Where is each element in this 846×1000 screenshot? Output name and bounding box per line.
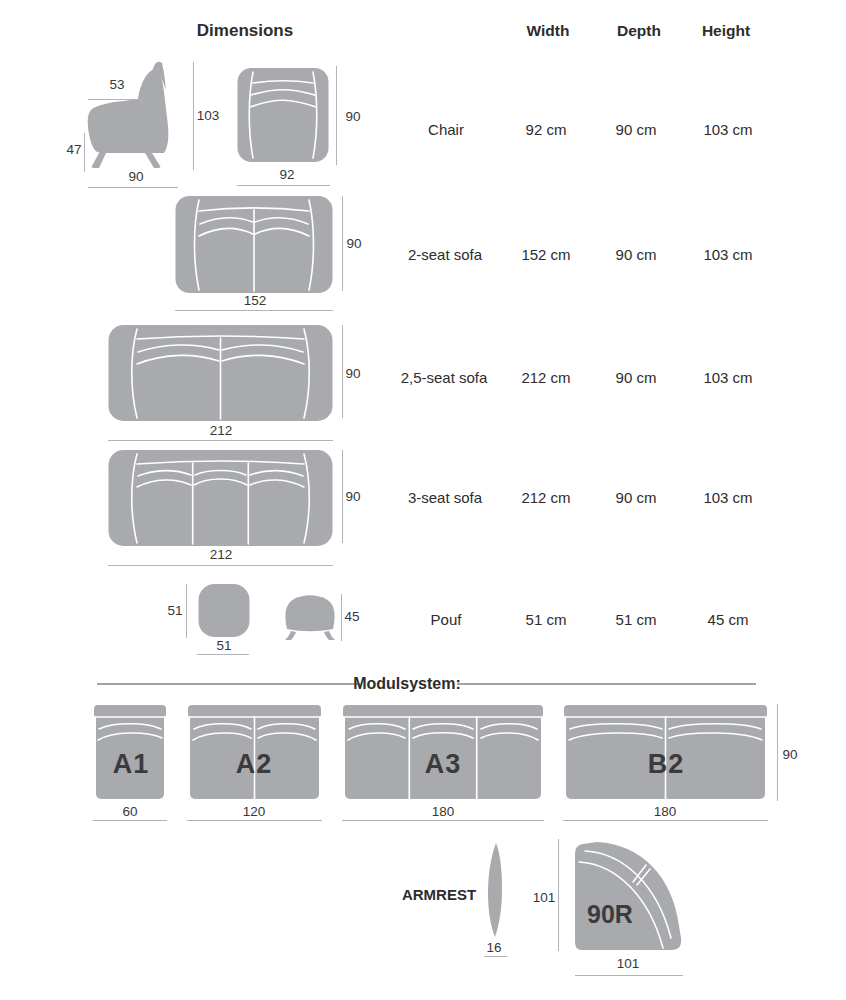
row-name-3seat: 3-seat sofa bbox=[408, 489, 482, 506]
column-header-width: Width bbox=[527, 22, 570, 40]
module-a2-dimline bbox=[187, 820, 322, 821]
chair-side-height-dim: 103 bbox=[197, 108, 220, 123]
pouf-top-view bbox=[197, 582, 251, 639]
module-b2-label: B2 bbox=[648, 749, 685, 780]
chair-side-depth-dimline bbox=[88, 187, 178, 188]
chair-side-top-dim: 53 bbox=[109, 77, 124, 92]
sofa3-depth-dim: 90 bbox=[345, 489, 360, 504]
chair-top-depth-dimline bbox=[336, 66, 337, 165]
chair-side-seatheight-dim: 47 bbox=[66, 142, 81, 157]
corner-depth-dimline bbox=[558, 839, 559, 951]
dimensions-sheet: Dimensions Width Depth Height 53 103 47 … bbox=[0, 0, 846, 1000]
row-height-3seat: 103 cm bbox=[703, 489, 752, 506]
armrest-width-dim: 16 bbox=[486, 940, 501, 955]
sofa2-depth-dim: 90 bbox=[346, 236, 361, 251]
row-depth-chair: 90 cm bbox=[616, 121, 657, 138]
corner-90r-shape bbox=[571, 838, 684, 954]
row-height-pouf: 45 cm bbox=[708, 611, 749, 628]
row-name-25seat: 2,5-seat sofa bbox=[401, 369, 488, 386]
row-depth-25seat: 90 cm bbox=[616, 369, 657, 386]
sofa3-width-dim: 212 bbox=[210, 547, 233, 562]
page-title: Dimensions bbox=[197, 21, 293, 41]
armrest-label: ARMREST bbox=[402, 886, 476, 903]
module-depth-dim: 90 bbox=[782, 747, 797, 762]
armrest-dimline bbox=[484, 956, 507, 957]
chair-top-depth-dim: 90 bbox=[345, 109, 360, 124]
row-height-25seat: 103 cm bbox=[703, 369, 752, 386]
sofa3-width-dimline bbox=[108, 565, 333, 566]
row-width-25seat: 212 cm bbox=[521, 369, 570, 386]
module-a1-width-dim: 60 bbox=[122, 804, 137, 819]
sofa25-depth-dim: 90 bbox=[345, 366, 360, 381]
pouf-height-dimline bbox=[341, 594, 342, 641]
chair-side-depth-dim: 90 bbox=[128, 169, 143, 184]
row-depth-pouf: 51 cm bbox=[616, 611, 657, 628]
pouf-width-dim: 51 bbox=[216, 638, 231, 653]
sofa2-width-dim: 152 bbox=[244, 293, 267, 308]
corner-90r-label: 90R bbox=[587, 900, 633, 929]
row-width-pouf: 51 cm bbox=[526, 611, 567, 628]
modulsystem-heading: Modulsystem: bbox=[353, 675, 461, 693]
module-a3-dimline bbox=[342, 820, 544, 821]
chair-top-width-dimline bbox=[237, 185, 330, 186]
sofa2-depth-dimline bbox=[342, 196, 343, 291]
sofa-3seat-top-view bbox=[107, 448, 334, 548]
sofa25-depth-dimline bbox=[342, 325, 343, 418]
sofa25-width-dimline bbox=[108, 440, 333, 441]
corner-width-dimline bbox=[575, 975, 683, 976]
row-width-2seat: 152 cm bbox=[521, 246, 570, 263]
chair-side-height-dimline bbox=[193, 62, 194, 170]
row-height-2seat: 103 cm bbox=[703, 246, 752, 263]
module-depth-dimline bbox=[777, 704, 778, 801]
pouf-width-dimline bbox=[197, 654, 249, 655]
sofa-2seat-top-view bbox=[174, 194, 334, 295]
module-a1-label: A1 bbox=[113, 749, 150, 780]
row-name-2seat: 2-seat sofa bbox=[408, 246, 482, 263]
corner-width-dim: 101 bbox=[617, 956, 640, 971]
sofa3-depth-dimline bbox=[342, 450, 343, 543]
sofa-25seat-top-view bbox=[107, 323, 334, 423]
module-a2-label: A2 bbox=[236, 749, 273, 780]
chair-top-width-dim: 92 bbox=[279, 167, 294, 182]
pouf-depth-dimline bbox=[186, 584, 187, 638]
module-a2-width-dim: 120 bbox=[243, 804, 266, 819]
chair-side-seatheight-dimline bbox=[84, 133, 85, 172]
row-name-pouf: Pouf bbox=[431, 611, 462, 628]
modulsystem-separator-left bbox=[97, 683, 360, 685]
chair-side-top-dimline bbox=[88, 99, 147, 100]
module-a1-dimline bbox=[93, 820, 167, 821]
row-depth-3seat: 90 cm bbox=[616, 489, 657, 506]
row-width-3seat: 212 cm bbox=[521, 489, 570, 506]
column-header-height: Height bbox=[702, 22, 750, 40]
chair-side-view bbox=[84, 60, 184, 172]
row-height-chair: 103 cm bbox=[703, 121, 752, 138]
pouf-side-view bbox=[282, 591, 338, 641]
row-depth-2seat: 90 cm bbox=[616, 246, 657, 263]
row-width-chair: 92 cm bbox=[526, 121, 567, 138]
corner-depth-dim: 101 bbox=[533, 890, 556, 905]
column-header-depth: Depth bbox=[617, 22, 661, 40]
pouf-height-dim: 45 bbox=[344, 609, 359, 624]
module-b2-width-dim: 180 bbox=[654, 804, 677, 819]
module-a3-width-dim: 180 bbox=[432, 804, 455, 819]
chair-top-view bbox=[236, 66, 330, 164]
armrest-shape bbox=[484, 841, 506, 939]
modulsystem-separator-right bbox=[457, 683, 756, 685]
sofa25-width-dim: 212 bbox=[210, 423, 233, 438]
row-name-chair: Chair bbox=[428, 121, 464, 138]
module-b2-dimline bbox=[563, 820, 768, 821]
sofa2-width-dimline bbox=[175, 310, 333, 311]
pouf-depth-dim: 51 bbox=[167, 603, 182, 618]
module-a3-label: A3 bbox=[425, 749, 462, 780]
